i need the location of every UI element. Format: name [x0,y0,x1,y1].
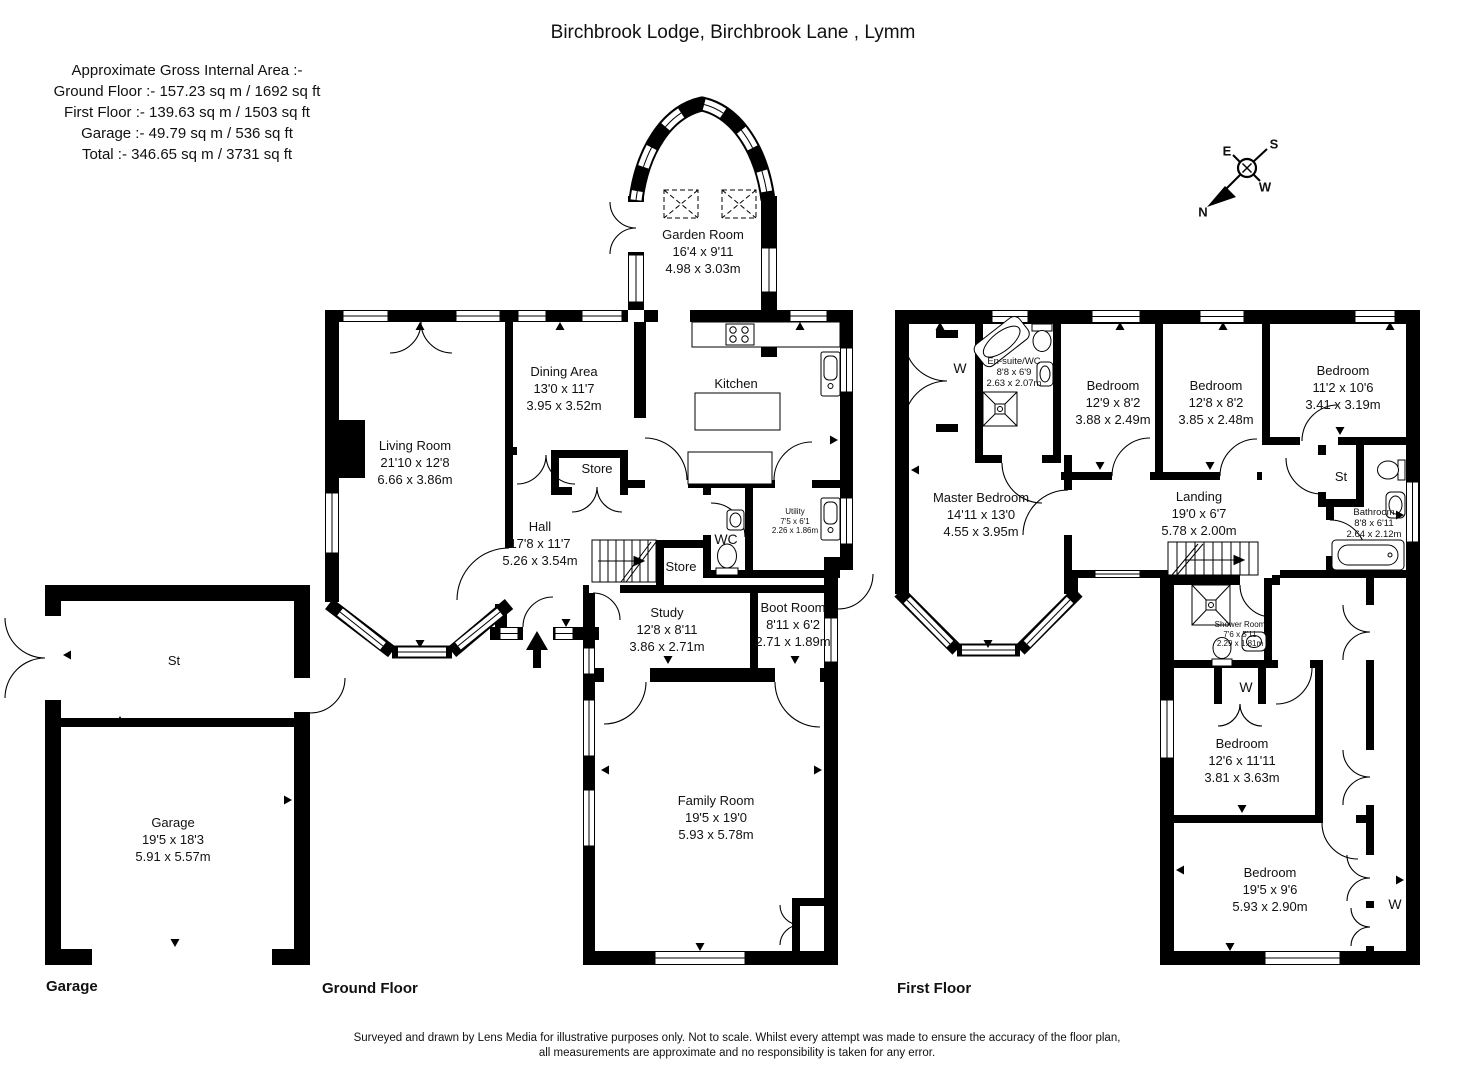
room-label-wc: WC [714,531,737,548]
garage-plan [5,585,345,965]
room-label-family-room: Family Room19'5 x 19'05.93 x 5.78m [678,792,755,843]
room-label-boot-room: Boot Room8'11 x 6'22.71 x 1.89m [755,599,830,650]
sink-icon [821,352,840,396]
disclaimer-line-1: Surveyed and drawn by Lens Media for ill… [354,1031,1121,1046]
toilet-icon [716,544,738,575]
room-label-study: Study12'8 x 8'113.86 x 2.71m [629,604,704,655]
room-label-wardrobe-right: W [1388,896,1401,913]
garden-room-arch [636,104,768,200]
room-label-master-bedroom: Master Bedroom14'11 x 13'04.55 x 3.95m [933,489,1029,540]
toilet-icon [1378,460,1406,480]
compass-south-label: S [1270,137,1279,152]
room-label-garden-room: Garden Room16'4 x 9'114.98 x 3.03m [662,226,744,277]
counter [692,322,840,347]
room-label-garage-store: St [168,652,180,669]
compass-west-label: W [1259,180,1271,195]
room-label-wardrobe-mid: W [1239,679,1252,696]
area-line: First Floor :- 139.63 sq m / 1503 sq ft [54,102,321,123]
room-label-store-2: Store [665,558,696,575]
entry-arrow [526,631,548,668]
skylight-icon [664,190,756,218]
floor-label-first: First Floor [897,980,971,997]
area-line: Ground Floor :- 157.23 sq m / 1692 sq ft [54,81,321,102]
bath-icon [1332,540,1404,570]
compass-rose [1207,149,1267,207]
stairs-icon [1168,542,1258,575]
island [695,393,780,430]
walls [45,585,310,965]
toilet-icon [1032,324,1052,352]
counter-low [688,452,772,484]
room-label-bedroom-3: Bedroom11'2 x 10'63.41 x 3.19m [1305,362,1380,413]
room-label-store-ff: St [1335,468,1347,485]
room-label-shower-room: Shower Room7'6 x 5'112.29 x 1.81m [1215,620,1266,649]
area-heading: Approximate Gross Internal Area :- [54,60,321,81]
page-title: Birchbrook Lodge, Birchbrook Lane , Lymm [551,22,916,44]
floor-label-garage: Garage [46,978,98,995]
room-label-bathroom: Bathroom8'8 x 6'112.64 x 2.12m [1347,507,1402,540]
room-label-ensuite: En-suite/WC8'8 x 6'92.63 x 2.07m [987,356,1042,389]
room-label-bedroom-4: Bedroom12'6 x 11'113.81 x 3.63m [1204,735,1279,786]
floorplan-page: Birchbrook Lodge, Birchbrook Lane , Lymm… [0,0,1460,1080]
disclaimer-line-2: all measurements are approximate and no … [539,1046,935,1061]
room-label-garage: Garage19'5 x 18'35.91 x 5.57m [135,814,210,865]
room-label-landing: Landing19'0 x 6'75.78 x 2.00m [1161,488,1236,539]
room-label-bedroom-2: Bedroom12'8 x 8'23.85 x 2.48m [1178,377,1253,428]
compass-north-label: N [1198,205,1207,220]
area-line: Total :- 346.65 sq m / 3731 sq ft [54,144,321,165]
door-arcs [904,338,1370,946]
room-label-utility: Utility7'5 x 6'12.26 x 1.86m [772,507,818,536]
compass-east-label: E [1223,144,1232,159]
room-label-bedroom-5: Bedroom19'5 x 9'65.93 x 2.90m [1232,864,1307,915]
room-label-hall: Hall17'8 x 11'75.26 x 3.54m [502,518,577,569]
hob-icon [726,324,754,345]
shower-icon [983,392,1017,426]
basin-icon [727,510,744,530]
area-line: Garage :- 49.79 sq m / 536 sq ft [54,123,321,144]
floor-label-ground: Ground Floor [322,980,418,997]
room-label-bedroom-1: Bedroom12'9 x 8'23.88 x 2.49m [1075,377,1150,428]
shower-icon [1192,585,1230,625]
utility-sink-icon [821,498,840,540]
area-summary: Approximate Gross Internal Area :- Groun… [54,60,321,165]
room-label-kitchen: Kitchen [714,375,757,392]
room-label-dining-area: Dining Area13'0 x 11'73.95 x 3.52m [526,363,601,414]
room-label-living-room: Living Room21'10 x 12'86.66 x 3.86m [377,437,452,488]
stairs-icon [592,540,656,582]
room-label-wardrobe-master: W [953,360,966,377]
room-label-store-1: Store [581,460,612,477]
